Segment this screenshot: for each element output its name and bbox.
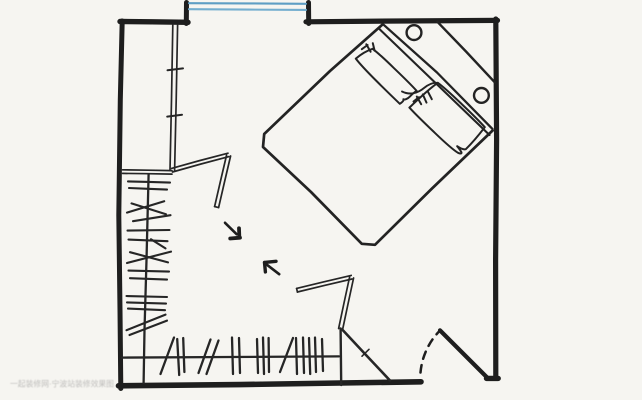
svg-text:一起装修网·宁波站装修效果图: 一起装修网·宁波站装修效果图 — [10, 379, 114, 389]
